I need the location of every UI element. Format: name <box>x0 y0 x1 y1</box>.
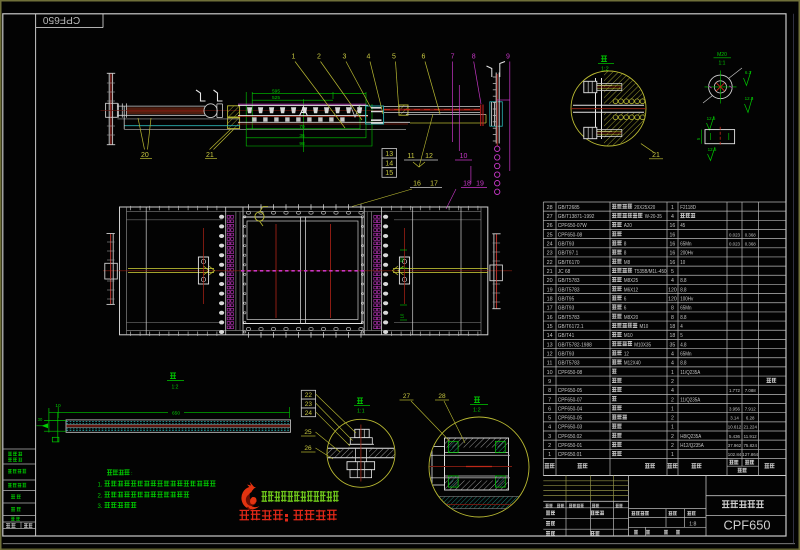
svg-text:JC 68: JC 68 <box>558 269 571 275</box>
svg-text:2: 2 <box>548 443 551 449</box>
svg-text:A20: A20 <box>624 223 632 229</box>
svg-text:200Hv: 200Hv <box>680 250 694 256</box>
svg-text:11: 11 <box>407 153 414 160</box>
svg-text:8: 8 <box>671 315 674 321</box>
svg-text:4: 4 <box>367 54 371 61</box>
svg-text:8: 8 <box>624 250 627 256</box>
svg-text:10: 10 <box>680 260 685 266</box>
svg-text:6: 6 <box>422 54 426 61</box>
svg-text:5.436: 5.436 <box>729 434 740 439</box>
svg-text:24: 24 <box>305 410 313 417</box>
svg-text:18: 18 <box>463 181 471 188</box>
svg-text:19: 19 <box>547 287 553 293</box>
svg-text:1: 1 <box>671 425 674 431</box>
svg-text:6: 6 <box>624 296 627 302</box>
svg-text:GB/T2685: GB/T2685 <box>558 205 580 211</box>
svg-text:120: 120 <box>668 297 677 303</box>
svg-text:1:8: 1:8 <box>689 522 696 528</box>
svg-text:20X25X20: 20X25X20 <box>634 205 655 211</box>
svg-text:19: 19 <box>476 181 484 188</box>
svg-text:1.772: 1.772 <box>729 388 740 393</box>
svg-text:3.14: 3.14 <box>730 415 739 420</box>
svg-text:GB/T5783: GB/T5783 <box>558 360 580 366</box>
svg-text:CPF650-05: CPF650-05 <box>558 415 583 421</box>
svg-text:102.84: 102.84 <box>728 452 742 457</box>
svg-text:16: 16 <box>413 181 421 188</box>
svg-text:2: 2 <box>671 443 674 449</box>
svg-text:14: 14 <box>385 161 393 168</box>
svg-text:3: 3 <box>343 54 347 61</box>
svg-text:CPF650.02: CPF650.02 <box>558 434 582 440</box>
svg-text:GB/T5782-1988: GB/T5782-1988 <box>558 342 592 348</box>
svg-text:GB/T93: GB/T93 <box>558 305 575 311</box>
svg-text:8.8: 8.8 <box>680 360 687 366</box>
svg-text:11/Q235A: 11/Q235A <box>680 370 701 376</box>
svg-text:37.962: 37.962 <box>728 443 742 448</box>
svg-text:22: 22 <box>547 260 553 266</box>
svg-text:1:1: 1:1 <box>719 61 726 67</box>
svg-text:15: 15 <box>547 324 553 330</box>
svg-text:F2118D: F2118D <box>680 205 696 211</box>
svg-text:26: 26 <box>547 223 553 229</box>
svg-text:GB/T5783: GB/T5783 <box>558 278 580 284</box>
svg-text:CPF650: CPF650 <box>42 14 80 25</box>
svg-text:CPF650-03: CPF650-03 <box>558 425 583 431</box>
svg-text:26: 26 <box>304 445 312 452</box>
svg-text:70: 70 <box>299 124 305 130</box>
svg-text:7: 7 <box>451 54 455 61</box>
svg-text:2: 2 <box>317 54 321 61</box>
svg-text:GB/T95: GB/T95 <box>558 296 575 302</box>
svg-text:28: 28 <box>438 393 446 400</box>
svg-text:11.912: 11.912 <box>744 434 757 439</box>
svg-text:4: 4 <box>671 351 674 357</box>
svg-text:10: 10 <box>460 153 468 160</box>
svg-text:2: 2 <box>671 434 674 440</box>
svg-text:12.5: 12.5 <box>745 96 754 101</box>
svg-text:4: 4 <box>671 388 674 394</box>
svg-text:9: 9 <box>506 54 510 61</box>
svg-text:36: 36 <box>299 133 305 139</box>
svg-text:5: 5 <box>680 333 683 339</box>
svg-text:6: 6 <box>548 406 551 412</box>
svg-text:28: 28 <box>547 205 553 211</box>
svg-text:16: 16 <box>670 232 676 238</box>
svg-text:25: 25 <box>304 429 312 436</box>
svg-text:30: 30 <box>38 417 43 422</box>
svg-text:8: 8 <box>624 241 627 247</box>
svg-text:8.8: 8.8 <box>680 315 687 321</box>
svg-text:23: 23 <box>547 251 553 257</box>
svg-text:21: 21 <box>547 269 553 275</box>
svg-text:CPF650-07: CPF650-07 <box>558 397 583 403</box>
svg-text:10.612: 10.612 <box>728 424 742 429</box>
svg-text:5: 5 <box>548 416 551 422</box>
svg-text:21.224: 21.224 <box>743 424 757 429</box>
svg-text:1:2: 1:2 <box>172 385 179 391</box>
svg-text:11/Q235A: 11/Q235A <box>680 397 701 403</box>
svg-text:8.8: 8.8 <box>680 278 687 284</box>
svg-text:13: 13 <box>385 151 393 158</box>
svg-text:100Hv: 100Hv <box>680 296 694 302</box>
svg-text:GB/T93: GB/T93 <box>558 351 575 357</box>
svg-text:W-20-35: W-20-35 <box>645 214 662 220</box>
svg-text:8.8: 8.8 <box>680 287 687 293</box>
svg-text:GB/T5783: GB/T5783 <box>558 315 580 321</box>
svg-text:8: 8 <box>548 388 551 394</box>
svg-text:35: 35 <box>670 342 676 348</box>
svg-text:12: 12 <box>425 153 433 160</box>
svg-text:27: 27 <box>403 393 411 400</box>
svg-text:GB/T13871-1992: GB/T13871-1992 <box>558 214 595 220</box>
svg-text:65Mn: 65Mn <box>680 351 692 357</box>
svg-text:2.: 2. <box>98 493 103 499</box>
svg-text:10: 10 <box>547 370 553 376</box>
svg-text:1:1: 1:1 <box>357 409 365 415</box>
svg-text:1: 1 <box>671 370 674 376</box>
svg-text:CPF650-07W: CPF650-07W <box>558 223 587 229</box>
svg-text:127.864: 127.864 <box>742 452 758 457</box>
svg-text:16: 16 <box>670 242 676 248</box>
svg-text:75.824: 75.824 <box>743 443 757 448</box>
svg-text:15: 15 <box>385 170 393 177</box>
svg-text:CPF650-04: CPF650-04 <box>558 406 583 412</box>
svg-text:M20: M20 <box>717 52 727 58</box>
svg-text:M12X40: M12X40 <box>624 360 641 366</box>
svg-text:7.088: 7.088 <box>745 388 756 393</box>
svg-text:CPF650-08: CPF650-08 <box>558 370 583 376</box>
svg-text:M6X12: M6X12 <box>624 287 639 293</box>
svg-text:3: 3 <box>548 434 551 440</box>
svg-text:GB/T93: GB/T93 <box>558 241 575 247</box>
svg-text:16: 16 <box>670 251 676 257</box>
svg-text:25: 25 <box>547 232 553 238</box>
svg-text:M10X35: M10X35 <box>634 342 651 348</box>
svg-text:98: 98 <box>299 141 305 147</box>
svg-text:10: 10 <box>400 313 405 318</box>
svg-text:11: 11 <box>547 361 553 367</box>
svg-text:4: 4 <box>671 214 674 220</box>
svg-text:M8: M8 <box>624 260 631 266</box>
svg-text:0.368: 0.368 <box>745 232 756 237</box>
svg-text:21: 21 <box>206 152 214 159</box>
svg-text:1: 1 <box>671 406 674 412</box>
svg-text:16: 16 <box>547 315 553 321</box>
svg-text:M8X25: M8X25 <box>624 278 639 284</box>
svg-text:4: 4 <box>671 361 674 367</box>
svg-text:120: 120 <box>668 287 677 293</box>
svg-text:7.912: 7.912 <box>745 406 756 411</box>
svg-text:14: 14 <box>547 333 553 339</box>
svg-text:12: 12 <box>547 351 553 357</box>
svg-text:1:2: 1:2 <box>473 408 481 414</box>
svg-text:6: 6 <box>624 305 627 311</box>
svg-text:CPF650-08: CPF650-08 <box>558 232 583 238</box>
svg-text:6.28: 6.28 <box>746 415 755 420</box>
svg-text:5: 5 <box>392 54 396 61</box>
svg-text:H8/Q235A: H8/Q235A <box>680 434 702 440</box>
svg-text:16: 16 <box>670 260 676 266</box>
svg-text:3.956: 3.956 <box>729 406 740 411</box>
svg-text:M10: M10 <box>640 324 649 330</box>
svg-text:2: 2 <box>671 416 674 422</box>
svg-text:650: 650 <box>172 410 180 416</box>
svg-text:4: 4 <box>671 278 674 284</box>
svg-text:65Mn: 65Mn <box>680 305 692 311</box>
svg-text:45: 45 <box>680 223 685 229</box>
svg-text:2: 2 <box>671 379 674 385</box>
svg-text:CPF650: CPF650 <box>724 517 771 532</box>
svg-text:GB/T6172.1: GB/T6172.1 <box>558 324 584 330</box>
svg-text:27: 27 <box>547 214 553 220</box>
svg-text:18: 18 <box>547 297 553 303</box>
svg-text:16: 16 <box>670 223 676 229</box>
svg-text:5: 5 <box>671 269 674 275</box>
svg-text:8: 8 <box>671 306 674 312</box>
svg-text:1: 1 <box>548 452 551 458</box>
svg-text:4.8: 4.8 <box>680 342 687 348</box>
svg-text:7: 7 <box>548 397 551 403</box>
svg-text:CPF650-05: CPF650-05 <box>558 388 583 394</box>
svg-text:9: 9 <box>548 379 551 385</box>
svg-text:10: 10 <box>55 403 61 409</box>
svg-text:GB/T5783: GB/T5783 <box>558 287 580 293</box>
svg-text:13: 13 <box>547 342 553 348</box>
svg-text:H12/Q235A: H12/Q235A <box>680 443 704 449</box>
svg-text:0.368: 0.368 <box>745 241 756 246</box>
svg-text:17: 17 <box>547 306 553 312</box>
svg-text:CPF650.01: CPF650.01 <box>558 452 582 458</box>
svg-text:8: 8 <box>472 54 476 61</box>
svg-text:18: 18 <box>670 324 676 330</box>
svg-text:3.: 3. <box>98 504 103 510</box>
svg-text:GB/T6170: GB/T6170 <box>558 260 580 266</box>
svg-text:2: 2 <box>671 397 674 403</box>
svg-text:18: 18 <box>670 333 676 339</box>
svg-text:1: 1 <box>292 54 296 61</box>
svg-text:525: 525 <box>272 95 280 101</box>
svg-text:0.023: 0.023 <box>729 241 740 246</box>
svg-text:4: 4 <box>680 324 683 330</box>
svg-text:M10: M10 <box>624 333 633 339</box>
svg-text:M8X20: M8X20 <box>624 315 639 321</box>
svg-text:20: 20 <box>141 152 149 159</box>
svg-text:CPF650-01: CPF650-01 <box>558 443 583 449</box>
svg-text:GB/T41: GB/T41 <box>558 333 575 339</box>
svg-text:595: 595 <box>272 89 280 95</box>
svg-text:21: 21 <box>652 152 660 159</box>
svg-text:23: 23 <box>305 401 313 408</box>
svg-text:0.023: 0.023 <box>729 232 740 237</box>
svg-text:12.5: 12.5 <box>707 116 716 121</box>
svg-text:22: 22 <box>305 392 313 399</box>
svg-text:12.5: 12.5 <box>708 147 717 152</box>
svg-text:GB/T97.1: GB/T97.1 <box>558 251 579 257</box>
svg-text:17: 17 <box>430 181 438 188</box>
svg-text:24: 24 <box>547 242 553 248</box>
svg-text:20: 20 <box>547 278 553 284</box>
svg-text:T535B/M1L-450: T535B/M1L-450 <box>634 269 667 275</box>
svg-text:50: 50 <box>400 257 405 262</box>
svg-text:1: 1 <box>671 452 674 458</box>
svg-text:65Mn: 65Mn <box>680 241 692 247</box>
svg-text:12: 12 <box>624 351 629 357</box>
svg-text:1: 1 <box>671 205 674 211</box>
svg-text:4: 4 <box>548 425 551 431</box>
svg-text:1.: 1. <box>98 482 103 488</box>
